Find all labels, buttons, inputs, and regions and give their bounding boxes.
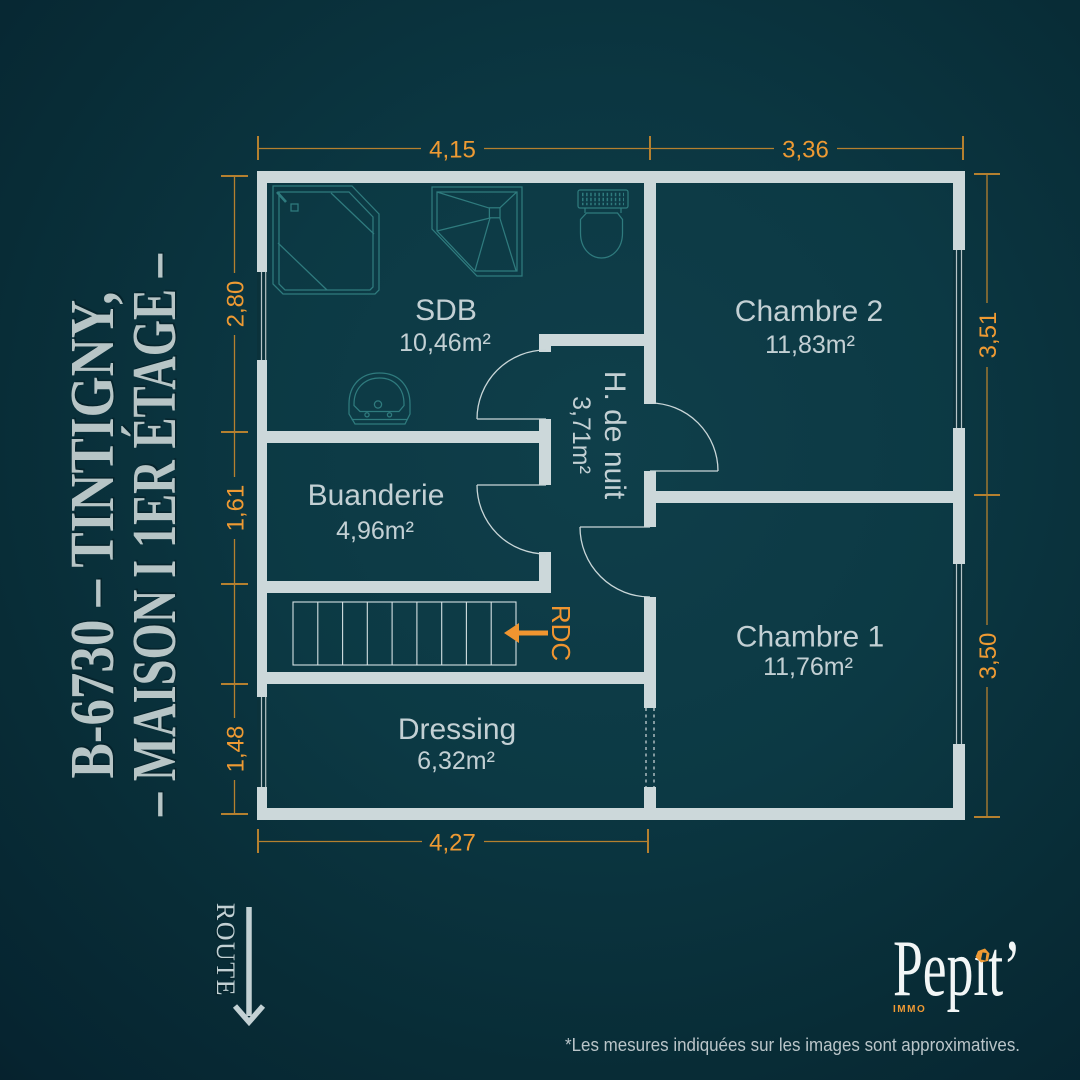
svg-text:2,80: 2,80	[223, 281, 250, 328]
svg-text:Buanderie: Buanderie	[308, 479, 445, 512]
svg-text:3,71m²: 3,71m²	[567, 396, 595, 474]
svg-text:11,83m²: 11,83m²	[765, 331, 855, 359]
svg-text:– MAISON I 1ER ÉTAGE –: – MAISON I 1ER ÉTAGE –	[121, 253, 189, 816]
svg-text:4,96m²: 4,96m²	[336, 517, 414, 545]
svg-text:10,46m²: 10,46m²	[399, 329, 491, 357]
svg-text:SDB: SDB	[415, 294, 477, 327]
svg-text:RDC: RDC	[546, 605, 576, 661]
svg-text:3,51: 3,51	[975, 312, 1002, 359]
svg-text:11,76m²: 11,76m²	[763, 653, 853, 681]
svg-text:H. de nuit: H. de nuit	[598, 371, 631, 500]
svg-text:1,48: 1,48	[223, 726, 250, 773]
svg-text:4,15: 4,15	[429, 137, 476, 164]
svg-text:Chambre 2: Chambre 2	[735, 295, 883, 328]
svg-text:6,32m²: 6,32m²	[417, 747, 495, 775]
svg-text:IMMO: IMMO	[893, 1004, 926, 1015]
svg-text:B-6730 – TINTIGNY,: B-6730 – TINTIGNY,	[59, 292, 127, 779]
svg-text:3,36: 3,36	[782, 137, 829, 164]
svg-text:*Les mesures indiquées sur les: *Les mesures indiquées sur les images so…	[565, 1034, 1020, 1055]
svg-text:4,27: 4,27	[429, 830, 476, 857]
svg-text:1,61: 1,61	[223, 485, 250, 532]
svg-text:Pepıt’: Pepıt’	[893, 925, 1021, 1013]
svg-text:ROUTE: ROUTE	[211, 903, 240, 997]
svg-text:Chambre 1: Chambre 1	[736, 621, 884, 654]
svg-text:3,50: 3,50	[975, 633, 1002, 680]
svg-text:Dressing: Dressing	[398, 713, 516, 746]
